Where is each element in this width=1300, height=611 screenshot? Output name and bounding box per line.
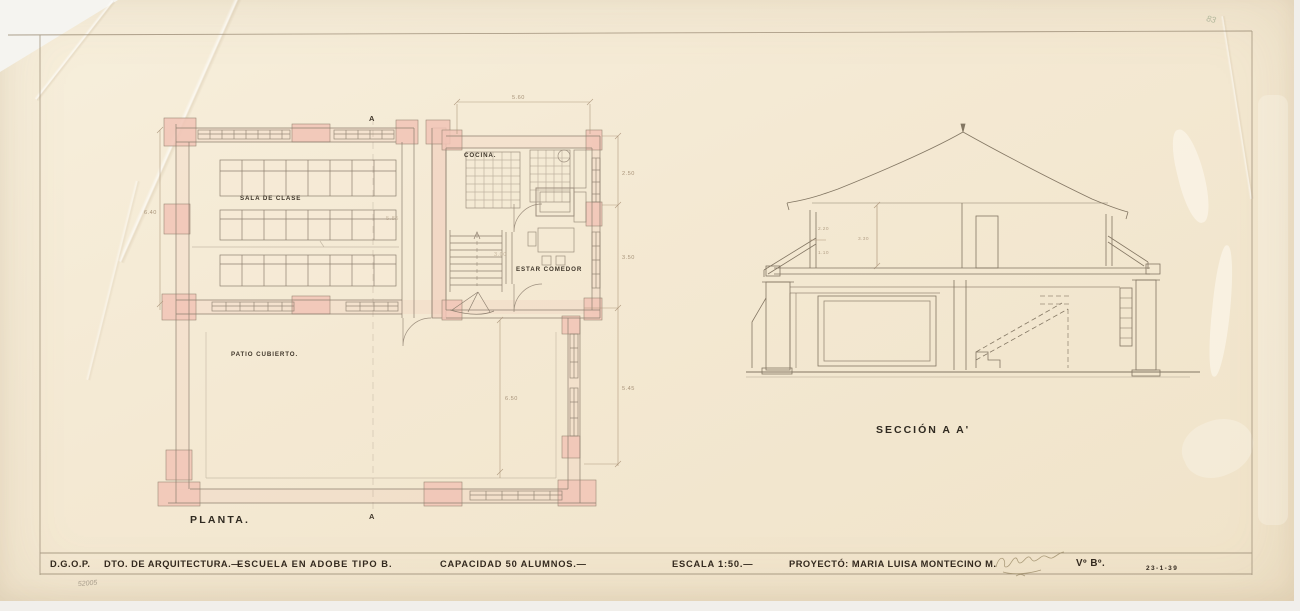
floor-plan (157, 99, 621, 512)
dim-sill: 1.10 (818, 250, 829, 256)
dim-stair-hall: 3.00 (494, 252, 507, 258)
section-upper-storey (764, 202, 1148, 277)
dimension-lines (157, 99, 621, 478)
dim-top: 5.60 (512, 95, 525, 101)
drawing-linework: 5.60 2.50 3.50 5.45 6.40 6.50 5.85 3.00 … (0, 0, 1300, 611)
section-drawing (746, 124, 1200, 377)
dim-right-lower: 5.45 (622, 386, 635, 392)
signature-scribble (996, 552, 1064, 576)
title-approval: Vº Bº. (1076, 558, 1105, 569)
classroom-desks (220, 160, 396, 286)
title-capacity: CAPACIDAD 50 ALUMNOS.— (440, 559, 587, 569)
section-floor-slab (766, 264, 1160, 276)
label-living-dining: ESTAR COMEDOR (516, 266, 582, 273)
dim-room-height: 3.30 (858, 236, 869, 242)
classroom-guide-line (192, 241, 399, 247)
dim-classroom: 5.85 (386, 216, 399, 222)
label-classroom: SALA DE CLASE (240, 195, 301, 202)
section-dimension-labels: 2.20 1.10 3.30 (818, 226, 869, 256)
section-lower-storey (752, 280, 1160, 376)
dim-right-upper: 2.50 (622, 171, 635, 177)
dim-right-middle: 3.50 (622, 255, 635, 261)
title-scale: ESCALA 1:50.— (672, 559, 753, 569)
title-department: DTO. DE ARQUITECTURA.— (104, 559, 241, 569)
dim-left: 6.40 (144, 210, 157, 216)
label-kitchen: COCINA. (464, 152, 496, 159)
section-marker-top: A (369, 114, 375, 123)
section-marker-bottom: A (369, 512, 375, 521)
corridor-wall-band (432, 128, 446, 318)
title-agency: D.G.O.P. (50, 559, 91, 569)
kitchen-fittings (466, 150, 586, 222)
door-swings (403, 204, 542, 346)
dim-patio: 6.50 (505, 396, 518, 402)
title-project: ESCUELA EN ADOBE TIPO B. (237, 559, 393, 569)
label-covered-patio: PATIO CUBIERTO. (231, 351, 298, 358)
dining-furniture (528, 228, 574, 265)
pencil-inventory-number: 52005 (78, 580, 98, 588)
section-roof (787, 124, 1128, 219)
scanned-drawing-sheet: 5.60 2.50 3.50 5.45 6.40 6.50 5.85 3.00 … (0, 0, 1300, 611)
corner-pencil-mark: 83 (1206, 13, 1218, 25)
section-caption: SECCIÓN A A' (876, 423, 970, 436)
title-author: PROYECTÓ: MARIA LUISA MONTECINO M. (789, 558, 996, 569)
title-block: D.G.O.P. DTO. DE ARQUITECTURA.— ESCUELA … (50, 552, 1178, 576)
title-date: 23-1-39 (1146, 565, 1178, 572)
dim-wall: 2.20 (818, 226, 829, 232)
plan-caption: PLANTA. (190, 514, 250, 526)
